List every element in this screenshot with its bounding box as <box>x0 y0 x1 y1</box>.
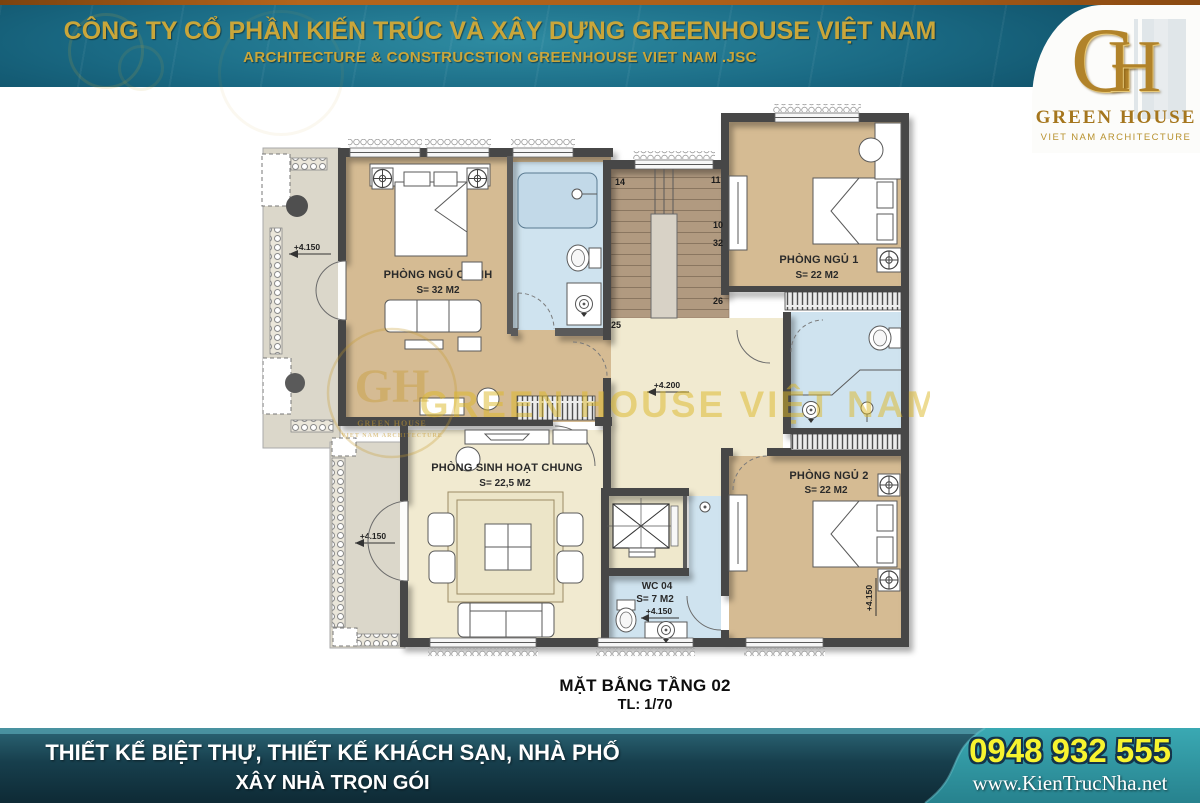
room-label: PHÒNG NGỦ 2 <box>789 469 868 482</box>
plan-caption: MẶT BẰNG TẦNG 02 TL: 1/70 <box>559 676 730 713</box>
company-name: CÔNG TY CỔ PHẦN KIẾN TRÚC VÀ XÂY DỰNG GR… <box>0 17 1000 46</box>
chair-icon <box>859 138 883 162</box>
footer-website[interactable]: www.KienTrucNha.net <box>945 771 1195 796</box>
window <box>348 139 422 157</box>
toilet-icon <box>869 326 901 350</box>
watermark-monogram: GH <box>355 360 430 413</box>
footer-services-line1: THIẾT KẾ BIỆT THỰ, THIẾT KẾ KHÁCH SẠN, N… <box>0 740 665 766</box>
room-label: WC 04 <box>642 581 673 592</box>
room-label: PHÒNG NGỦ 1 <box>779 253 858 266</box>
svg-text:+4.150: +4.150 <box>864 585 874 612</box>
window <box>744 638 825 656</box>
toilet-icon <box>567 245 601 271</box>
watermark-text: GREEN HOUSE VIỆT NAM <box>420 383 930 425</box>
header-text: CÔNG TY CỔ PHẦN KIẾN TRÚC VÀ XÂY DỰNG GR… <box>0 5 1000 66</box>
bed-icon <box>395 172 467 256</box>
louver-vent <box>785 292 901 310</box>
svg-text:+4.150: +4.150 <box>646 606 673 616</box>
window <box>511 139 575 157</box>
stair-number: 32 <box>713 238 723 248</box>
footer-banner: THIẾT KẾ BIỆT THỰ, THIẾT KẾ KHÁCH SẠN, N… <box>0 728 1200 803</box>
ceiling-fan-icon <box>880 476 898 494</box>
window <box>425 139 491 157</box>
sofa-icon <box>458 603 554 637</box>
page: CÔNG TY CỔ PHẦN KIẾN TRÚC VÀ XÂY DỰNG GR… <box>0 0 1200 803</box>
watermark-name: GREEN HOUSE <box>357 419 426 428</box>
stair-number: 11 <box>711 175 721 185</box>
chair-icon <box>429 551 455 583</box>
logo-panel: GH GREEN HOUSE VIET NAM ARCHITECTURE <box>1032 5 1200 153</box>
planter-box <box>332 438 356 456</box>
window <box>596 638 695 656</box>
window <box>773 104 861 122</box>
chair-icon <box>557 551 583 583</box>
shower-head-icon <box>572 189 582 199</box>
ceiling-fan-icon <box>880 251 898 269</box>
company-name-en: ARCHITECTURE & CONSTRUCSTION GREENHOUSE … <box>0 49 1000 66</box>
room-area: S= 7 M2 <box>636 594 674 605</box>
plan-scale: TL: 1/70 <box>559 697 730 713</box>
window <box>633 151 715 169</box>
planter-pot <box>286 195 308 217</box>
header-banner: CÔNG TY CỔ PHẦN KIẾN TRÚC VÀ XÂY DỰNG GR… <box>0 5 1200 87</box>
planter-pot <box>285 373 305 393</box>
room-area: S= 22 M2 <box>795 270 839 281</box>
chair-icon <box>557 513 583 546</box>
bed-icon <box>813 178 897 244</box>
stair-number: 26 <box>713 296 723 306</box>
table-icon <box>458 337 481 351</box>
window <box>428 638 538 656</box>
side-table-icon <box>462 262 482 280</box>
sofa-icon <box>385 300 481 332</box>
elevator-rail <box>671 506 678 546</box>
louver-vent <box>791 434 901 450</box>
plan-title: MẶT BẰNG TẦNG 02 <box>559 676 730 696</box>
logo-name: GREEN HOUSE <box>1032 107 1200 129</box>
shower-icon <box>518 173 597 228</box>
room-area: S= 32 M2 <box>416 285 460 296</box>
stair-number: 10 <box>713 220 723 230</box>
stair-landing <box>651 214 677 318</box>
floor-plan: +4.150 +4.150 <box>255 90 930 670</box>
chair-icon <box>428 513 454 546</box>
room-area: S= 22,5 M2 <box>479 478 531 489</box>
watermark-tagline: VIET NAM ARCHITECTURE <box>341 433 443 439</box>
toilet-icon <box>616 600 636 632</box>
ceiling-fan-icon <box>374 170 392 188</box>
ceiling-fan-icon <box>469 170 487 188</box>
stair-number: 25 <box>611 320 621 330</box>
balcony-lower: +4.150 <box>330 438 405 648</box>
bed-icon <box>813 501 897 567</box>
tv-console-icon <box>465 430 549 444</box>
cabinet-icon <box>553 430 587 444</box>
footer-phone: 0948 932 555 <box>945 732 1195 770</box>
footer-services-line2: XÂY NHÀ TRỌN GÓI <box>0 772 665 795</box>
room-label: PHÒNG SINH HOẠT CHUNG <box>431 461 582 474</box>
stair-number: 14 <box>615 177 625 187</box>
room-area: S= 22 M2 <box>804 485 848 496</box>
planter-box <box>262 154 290 206</box>
dining-table-icon <box>485 524 531 570</box>
gh-monogram-icon: GH <box>1032 21 1200 105</box>
logo-tagline: VIET NAM ARCHITECTURE <box>1032 132 1200 143</box>
ceiling-fan-icon <box>880 571 898 589</box>
planter-box <box>333 628 357 646</box>
elevator <box>607 498 678 557</box>
